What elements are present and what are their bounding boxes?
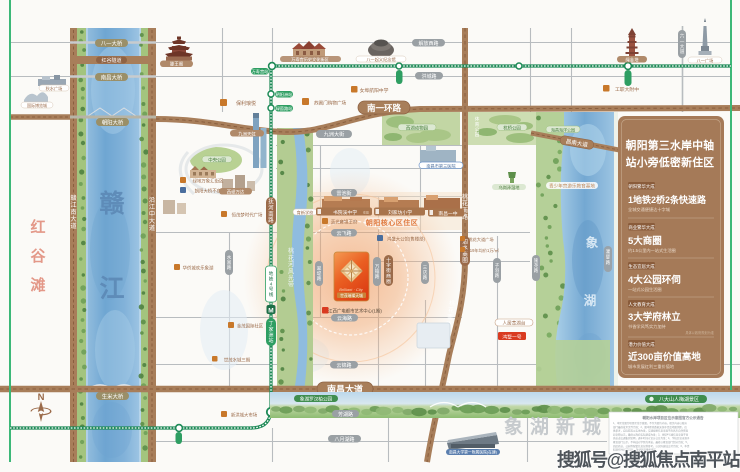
svg-text:周边商业、公园等配套信息仅供参考，以实际建成交付为准；6、本: 周边商业、公园等配套信息仅供参考，以实际建成交付为准；6、本资 — [613, 444, 690, 448]
svg-text:一站式公园生活圈: 一站式公园生活圈 — [628, 286, 662, 293]
svg-text:4大公园环伺: 4大公园环伺 — [628, 274, 681, 286]
svg-text:金茂国际社区: 金茂国际社区 — [237, 322, 264, 329]
svg-text:近300亩价值高地: 近300亩价值高地 — [628, 351, 701, 363]
svg-text:翠堤路: 翠堤路 — [317, 266, 322, 282]
svg-text:海昌海洋公园: 海昌海洋公园 — [551, 126, 575, 132]
svg-text:湖: 湖 — [584, 293, 597, 308]
svg-text:西湖动物园: 西湖动物园 — [406, 124, 429, 131]
svg-text:潜力价值大成: 潜力价值大成 — [628, 341, 655, 348]
svg-text:生态宜居大成: 生态宜居大成 — [628, 263, 655, 270]
svg-text:新洪城大市场: 新洪城大市场 — [231, 411, 258, 418]
svg-text:桃花大道广场: 桃花大道广场 — [468, 236, 493, 243]
svg-text:2019年均价1万/㎡: 2019年均价1万/㎡ — [465, 247, 500, 254]
svg-text:苏圃门购物广场: 苏圃门购物广场 — [314, 100, 347, 107]
svg-text:华侨城欢乐象湖: 华侨城欢乐象湖 — [183, 264, 214, 271]
svg-text:八大山人梅湖景区: 八大山人梅湖景区 — [659, 396, 699, 403]
svg-text:朝阳水岸项目区位示意图官方公示通告: 朝阳水岸项目区位示意图官方公示通告 — [642, 415, 703, 420]
svg-text:云锦路: 云锦路 — [336, 362, 351, 369]
svg-text:中央公园: 中央公园 — [208, 156, 226, 163]
svg-text:万寿宫站: 万寿宫站 — [252, 68, 269, 75]
svg-text:局官网公示，最终以政府实际建成为准；3、地铁4号线信息来源于: 局官网公示，最终以政府实际建成为准；3、地铁4号线信息来源于南 — [613, 432, 689, 436]
svg-text:约1.5公里内一站式生活圈: 约1.5公里内一站式生活圈 — [628, 247, 676, 254]
svg-text:南一环路: 南一环路 — [367, 103, 402, 113]
svg-text:沿江中大道: 沿江中大道 — [149, 196, 155, 232]
svg-text:九洲大街: 九洲大街 — [324, 130, 345, 138]
svg-text:抚河南路: 抚河南路 — [268, 198, 274, 224]
svg-text:江: 江 — [99, 275, 124, 303]
svg-text:Brilliant · City: Brilliant · City — [339, 287, 364, 292]
svg-text:水富路: 水富路 — [227, 254, 232, 271]
svg-text:女埠航阳中学: 女埠航阳中学 — [360, 87, 389, 94]
svg-text:秋水广场: 秋水广场 — [46, 85, 63, 92]
svg-text:芳湖路: 芳湖路 — [338, 411, 353, 418]
svg-text:蓝光雍锦王府: 蓝光雍锦王府 — [331, 218, 358, 225]
svg-text:云海路: 云海路 — [337, 315, 352, 322]
svg-text:赣: 赣 — [99, 189, 125, 218]
svg-text:红谷隧道: 红谷隧道 — [101, 57, 121, 64]
svg-text:绳金塔: 绳金塔 — [625, 56, 639, 63]
svg-text:象湖新城: 象湖新城 — [504, 415, 608, 438]
svg-text:南昌大学第一附属医院(在建): 南昌大学第一附属医院(在建) — [449, 450, 498, 455]
svg-text:朝阳大桥: 朝阳大桥 — [102, 118, 124, 126]
svg-text:红: 红 — [30, 218, 45, 236]
svg-text:育新学校: 育新学校 — [297, 209, 315, 216]
svg-text:江西广电都市艺术中心(1期): 江西广电都市艺术中心(1期) — [328, 308, 382, 315]
svg-text:赣江南大道: 赣江南大道 — [70, 194, 76, 230]
svg-text:滕王阁: 滕王阁 — [170, 61, 183, 68]
svg-text:万寿宫历史文化街区: 万寿宫历史文化街区 — [291, 56, 329, 63]
svg-text:刘家坊小学: 刘家坊小学 — [388, 209, 412, 216]
svg-text:在建: 在建 — [363, 209, 369, 214]
svg-text:工职大附中: 工职大附中 — [615, 86, 639, 93]
svg-text:具体以政府规划为准: 具体以政府规划为准 — [685, 330, 714, 335]
svg-text:洪城路: 洪城路 — [421, 73, 436, 80]
svg-text:人文教育大成: 人文教育大成 — [628, 301, 655, 308]
svg-text:八一起义纪念馆: 八一起义纪念馆 — [366, 56, 395, 63]
svg-text:商业繁华大成: 商业繁华大成 — [628, 224, 655, 231]
svg-text:朝阳洲站: 朝阳洲站 — [276, 91, 293, 98]
svg-text:昌轨道交通集团官网，通车时间以官方公告为准；4、学校信息来源: 昌轨道交通集团官网，通车时间以官方公告为准；4、学校信息来源于 — [613, 436, 690, 440]
svg-text:书院溪中学: 书院溪中学 — [333, 209, 357, 216]
svg-text:谷: 谷 — [30, 248, 46, 265]
svg-text:部门最终批复文件为准；2、图中距离数据来源于百度地图测距，仅: 部门最终批复文件为准；2、图中距离数据来源于百度地图测距，仅 — [613, 425, 687, 429]
svg-text:青少年宫游乐教育基地: 青少年宫游乐教育基地 — [549, 183, 595, 190]
svg-text:鸿墅一号: 鸿墅一号 — [502, 333, 521, 340]
svg-text:杭桥公园: 杭桥公园 — [503, 124, 521, 131]
svg-text:八一大桥: 八一大桥 — [101, 39, 123, 47]
svg-text:桃花南路: 桃花南路 — [462, 193, 468, 221]
svg-text:体育公园: 体育公园 — [475, 116, 480, 139]
svg-text:六一大道: 六一大道 — [680, 33, 685, 56]
svg-text:象: 象 — [586, 235, 599, 250]
svg-text:生米大桥: 生米大桥 — [102, 392, 124, 400]
svg-text:象湖罗汉柏公园: 象湖罗汉柏公园 — [300, 396, 333, 403]
svg-text:南昌大桥: 南昌大桥 — [101, 73, 123, 81]
svg-text:鸿盛大公馆(售楼部): 鸿盛大公馆(售楼部) — [387, 235, 426, 242]
svg-text:恒茂梦时代广场: 恒茂梦时代广场 — [232, 211, 263, 218]
svg-text:搜狐号@搜狐焦点南平站: 搜狐号@搜狐焦点南平站 — [557, 449, 740, 470]
svg-text:九洲天虹: 九洲天虹 — [238, 130, 256, 137]
svg-text:站小旁低密新住区: 站小旁低密新住区 — [626, 155, 715, 169]
svg-text:子羽路: 子羽路 — [495, 262, 500, 279]
svg-text:十字街商圈: 十字街商圈 — [386, 256, 391, 285]
svg-text:5大商圈: 5大商圈 — [628, 235, 662, 247]
svg-text:城市发展红利三重价值地: 城市发展红利三重价值地 — [628, 363, 675, 370]
svg-text:绿茵路站: 绿茵路站 — [276, 105, 293, 112]
svg-text:灌婴路: 灌婴路 — [606, 248, 611, 266]
svg-text:朝阳核心区住区: 朝阳核心区住区 — [366, 218, 419, 227]
svg-text:南昌市第三医院: 南昌市第三医院 — [426, 162, 456, 169]
svg-text:供参考，实际距离以实地为准，交通规划信息来源于南昌市自然资源: 供参考，实际距离以实地为准，交通规划信息来源于南昌市自然资源 — [613, 429, 689, 433]
svg-text:桃花河风光带: 桃花河风光带 — [288, 247, 294, 289]
svg-text:施尧路: 施尧路 — [534, 257, 539, 274]
svg-text:3大学府林立: 3大学府林立 — [628, 311, 681, 323]
svg-text:万镕路: 万镕路 — [375, 264, 380, 280]
svg-text:八月湖路: 八月湖路 — [334, 436, 354, 443]
svg-text:世茂璀璨天城: 世茂璀璨天城 — [340, 293, 363, 298]
svg-text:全城交通便捷达十字城: 全城交通便捷达十字城 — [628, 206, 671, 213]
svg-text:1、本区位图为项目区位示意图，不作为要约内容，相关内容以政府: 1、本区位图为项目区位示意图，不作为要约内容，相关内容以政府 — [613, 421, 687, 425]
svg-text:滩: 滩 — [30, 276, 45, 294]
svg-text:朝阳繁华大成: 朝阳繁华大成 — [628, 183, 655, 190]
svg-text:保利琅悦: 保利琅悦 — [236, 100, 256, 107]
svg-text:三店路: 三店路 — [423, 265, 428, 281]
svg-text:云飞路: 云飞路 — [336, 230, 351, 237]
svg-text:雷池街: 雷池街 — [336, 190, 351, 197]
svg-text:乌岗泽湿地: 乌岗泽湿地 — [499, 184, 521, 191]
svg-text:解放西路: 解放西路 — [418, 40, 438, 47]
svg-text:朝阳第三水岸中轴: 朝阳第三水岸中轴 — [626, 138, 715, 152]
svg-text:西堤万达: 西堤万达 — [227, 188, 245, 195]
svg-text:1地铁2桥2条快速路: 1地铁2桥2条快速路 — [628, 194, 707, 205]
svg-text:M: M — [268, 307, 273, 314]
svg-text:书香学风笃实力加持: 书香学风笃实力加持 — [628, 323, 666, 330]
svg-text:世茂水城三期: 世茂水城三期 — [224, 356, 251, 363]
svg-text:南昌一中: 南昌一中 — [438, 210, 457, 217]
svg-text:丁家洲站: 丁家洲站 — [268, 321, 273, 344]
svg-text:国际博览城: 国际博览城 — [27, 102, 47, 108]
svg-text:人居萃湖台: 人居萃湖台 — [503, 320, 526, 327]
svg-text:绿地万象汇街区: 绿地万象汇街区 — [193, 177, 224, 184]
svg-text:八一广场: 八一广场 — [697, 57, 714, 64]
svg-text:教育部门公示，不构成对学区的承诺，最终以教育部门划分为准；5: 教育部门公示，不构成对学区的承诺，最终以教育部门划分为准；5、 — [613, 440, 689, 444]
